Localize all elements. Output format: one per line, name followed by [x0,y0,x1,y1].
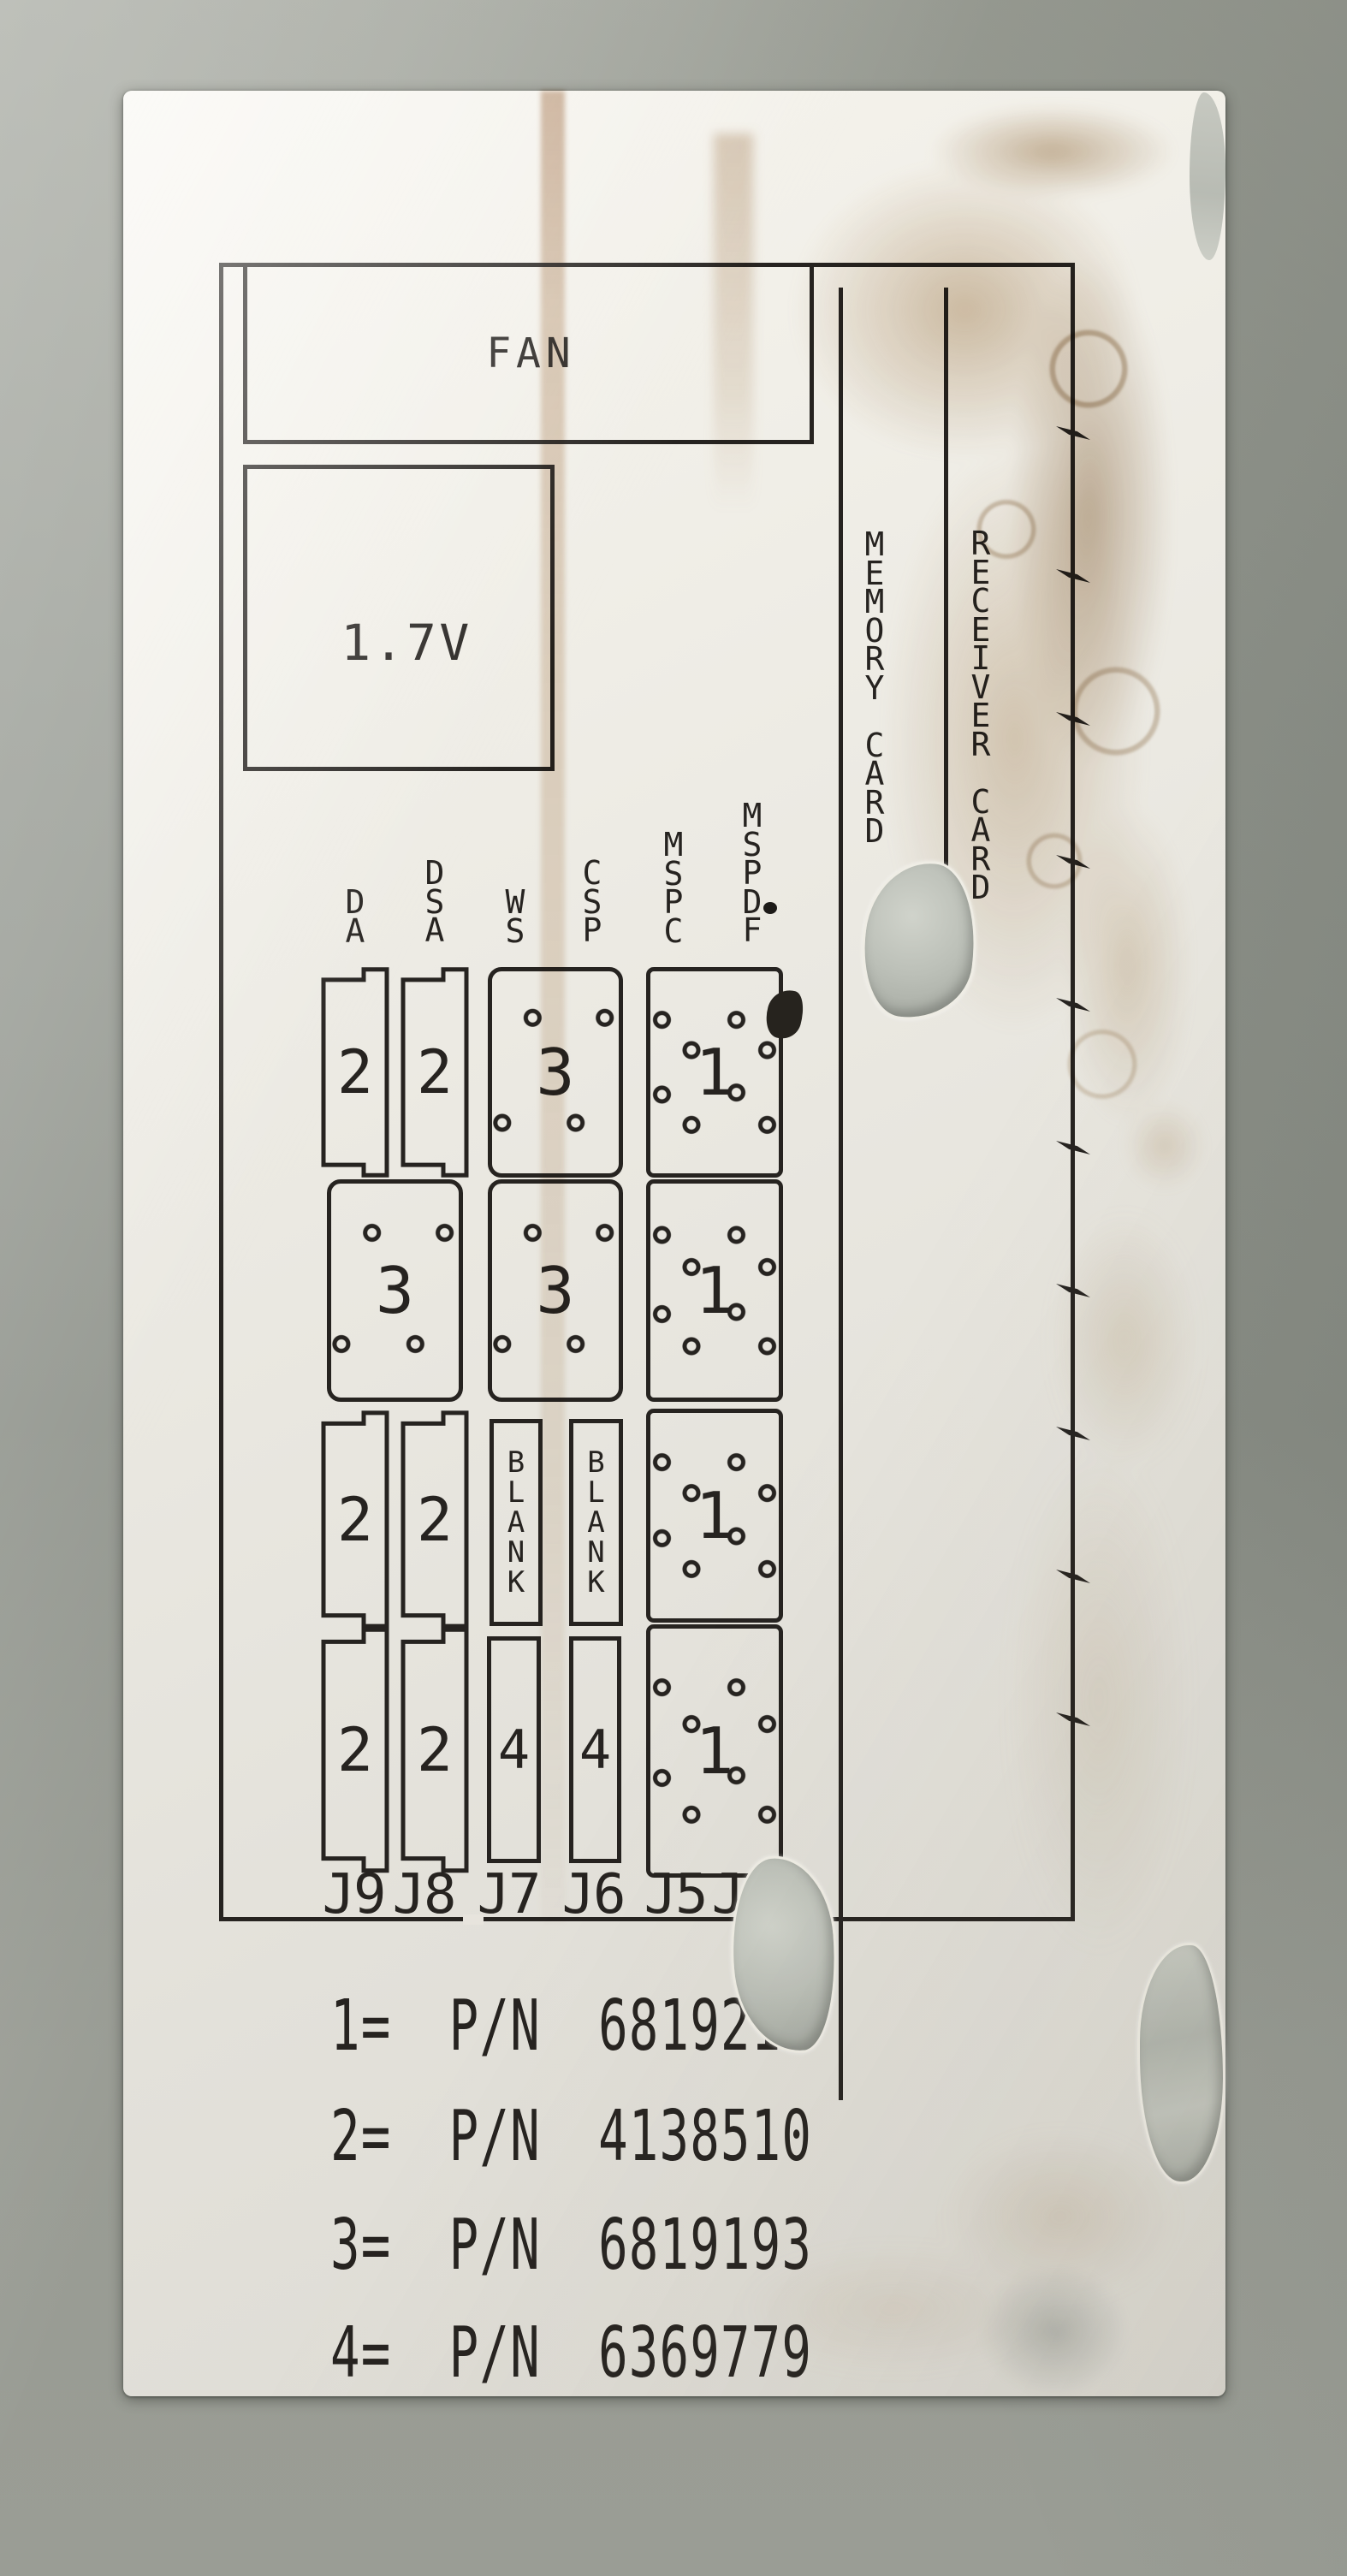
fan-box: FAN [243,263,814,444]
slot-number: 3 [376,1253,414,1328]
connector-box: 2 [321,1410,389,1629]
slot-number: 2 [337,1715,373,1785]
connector-j5: J5 [644,1867,706,1922]
receiver-card-slot-line [944,288,948,868]
memory-card-label: MEMORY CARD [862,531,887,846]
column-header-mspdf: MSPDF [739,802,765,946]
column-header-dsa: DSA [422,859,448,946]
card-cage-layout-label: FAN 1.7V MEMORY CARD RECEIVER CARD DA DS… [123,91,1225,2396]
connector-j7: J7 [477,1867,539,1922]
slot-number: 1 [695,1253,733,1328]
card-module-box: 3 [327,1179,463,1402]
slot-number: 1 [695,1713,733,1789]
card-module-box: 1 [646,1409,783,1623]
column-header-da: DA [342,888,368,946]
slot-number: 4 [498,1718,530,1781]
slot-number: 3 [536,1253,574,1328]
blank-slot-label: BLANK [586,1448,607,1598]
connector-j9: J9 [322,1867,384,1922]
voltage-box: 1.7V [243,465,555,771]
connector-box: 2 [401,967,469,1178]
blank-slot-box: BLANK [490,1419,543,1626]
torn-patch [1190,92,1225,260]
card-module-box: 1 [646,1624,783,1878]
connector-j8: J8 [392,1867,454,1922]
fan-label: FAN [482,329,576,377]
slot-number: 2 [417,1037,453,1107]
slot-number: 1 [695,1035,733,1110]
receiver-card-label: RECEIVER CARD [968,530,994,903]
column-header-ws: WS [502,888,528,946]
blank-slot-box: BLANK [569,1419,623,1626]
connector-box: 2 [401,1627,469,1873]
slot-number: 4 [579,1718,611,1781]
gray-smear [979,2264,1129,2397]
slot-box: 4 [569,1636,621,1863]
slot-number: 2 [417,1715,453,1785]
blank-slot-label: BLANK [506,1448,526,1598]
legend-line-3: 3= P/N 6819193 [330,2207,812,2284]
slot-number: 2 [337,1485,373,1555]
column-header-csp: CSP [579,859,605,946]
connector-box: 2 [401,1410,469,1629]
line-break-artifact [463,1914,484,1925]
legend-line-4: 4= P/N 6369779 [330,2315,812,2392]
slot-number: 1 [695,1478,733,1553]
slot-number: 2 [417,1485,453,1555]
card-module-box: 3 [488,1179,623,1402]
torn-patch [1137,1943,1225,2184]
connector-j6: J6 [561,1867,624,1922]
slot-box: 4 [487,1636,541,1863]
slot-number: 2 [337,1037,373,1107]
column-header-mspc: MSPC [661,831,686,946]
legend-line-2: 2= P/N 4138510 [330,2098,812,2175]
card-module-box: 3 [488,967,623,1178]
memory-card-slot-line [839,288,843,2100]
card-module-box: 1 [646,967,783,1178]
slot-number: 3 [536,1035,574,1110]
connector-box: 2 [321,1627,389,1873]
connector-box: 2 [321,967,389,1178]
voltage-label: 1.7V [325,564,472,672]
ink-speck [763,902,777,914]
card-module-box: 1 [646,1179,783,1402]
